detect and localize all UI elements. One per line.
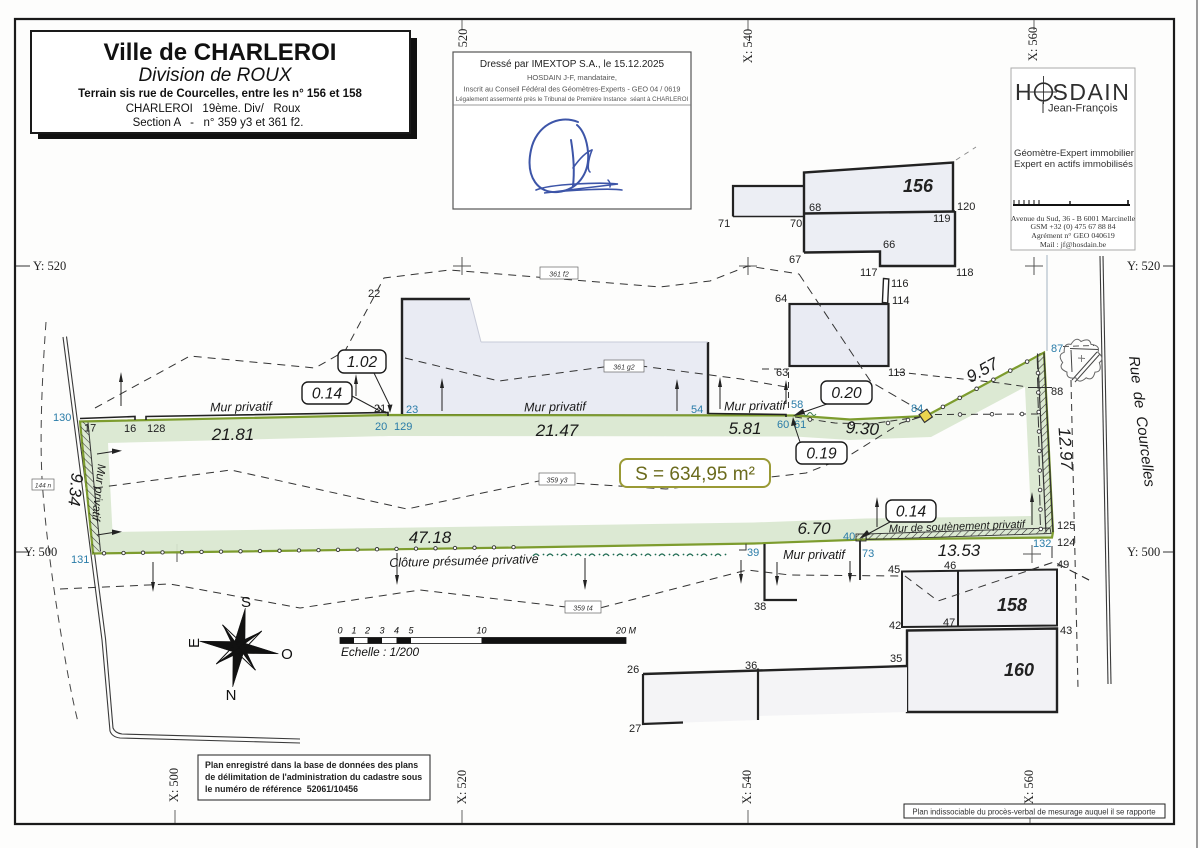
svg-text:Y: 500: Y: 500: [1127, 545, 1160, 559]
svg-text:Mur privatif: Mur privatif: [783, 548, 846, 562]
svg-text:118: 118: [956, 267, 974, 279]
svg-text:0.14: 0.14: [896, 504, 927, 521]
svg-text:5.81: 5.81: [728, 419, 761, 438]
svg-text:1: 1: [351, 626, 356, 636]
svg-text:Y: 520: Y: 520: [1127, 259, 1160, 273]
svg-text:130: 130: [53, 412, 71, 424]
svg-text:Division de ROUX: Division de ROUX: [138, 65, 292, 86]
svg-text:156: 156: [903, 176, 934, 196]
svg-text:46: 46: [944, 560, 956, 572]
svg-text:4: 4: [394, 626, 399, 636]
svg-text:66: 66: [883, 239, 895, 251]
svg-text:Mur privatif: Mur privatif: [724, 398, 788, 413]
svg-text:2: 2: [364, 626, 370, 636]
svg-text:158: 158: [997, 595, 1027, 615]
svg-text:124: 124: [1057, 537, 1075, 549]
svg-text:Y: 520: Y: 520: [33, 259, 66, 273]
svg-text:S: S: [241, 594, 251, 611]
svg-text:X: 540: X: 540: [740, 770, 754, 804]
svg-text:36: 36: [745, 660, 757, 672]
svg-text:Mur privatif: Mur privatif: [524, 399, 588, 414]
svg-text:361 g2: 361 g2: [613, 365, 635, 372]
svg-text:Mail : jf@hosdain.be: Mail : jf@hosdain.be: [1040, 240, 1107, 249]
svg-text:42: 42: [889, 620, 901, 632]
svg-text:de délimitation de l'administr: de délimitation de l'administration du c…: [205, 772, 422, 782]
svg-text:X: 500: X: 500: [167, 768, 181, 802]
svg-text:N: N: [226, 687, 237, 704]
svg-text:X: 560: X: 560: [1022, 770, 1036, 804]
svg-text:73: 73: [862, 548, 874, 560]
svg-text:39: 39: [747, 547, 759, 559]
svg-text:Y: 500: Y: 500: [24, 545, 57, 559]
svg-text:9.34: 9.34: [64, 472, 86, 507]
svg-text:Plan indissociable du procès-v: Plan indissociable du procès-verbal de m…: [912, 808, 1155, 817]
svg-text:9.30: 9.30: [845, 418, 880, 439]
svg-text:S = 634,95 m²: S = 634,95 m²: [635, 464, 755, 485]
svg-text:HOSDAIN J-F, mandataire,: HOSDAIN J-F, mandataire,: [527, 73, 617, 82]
svg-text:132: 132: [1033, 538, 1051, 550]
svg-text:1.02: 1.02: [347, 354, 378, 371]
svg-text:16: 16: [124, 423, 136, 435]
svg-text:35: 35: [890, 653, 902, 665]
svg-text:Section A - n° 359 y3 et 3: Section A - n° 359 y3 et 361 f2.: [133, 117, 304, 129]
svg-text:Dressé par IMEXTOP S.A., le 15: Dressé par IMEXTOP S.A., le 15.12.2025: [480, 59, 665, 70]
svg-text:116: 116: [891, 278, 909, 290]
svg-text:22: 22: [368, 288, 380, 300]
svg-text:Echelle : 1/200: Echelle : 1/200: [341, 645, 419, 659]
svg-text:114: 114: [892, 295, 910, 307]
svg-text:13.53: 13.53: [938, 541, 981, 560]
svg-text:20 M: 20 M: [615, 626, 637, 636]
svg-text:3: 3: [379, 626, 384, 636]
svg-text:131: 131: [71, 554, 89, 566]
svg-text:117: 117: [860, 267, 878, 279]
svg-text:45: 45: [888, 564, 900, 576]
svg-text:10: 10: [476, 626, 486, 636]
svg-text:54: 54: [691, 404, 703, 416]
svg-text:88: 88: [1051, 386, 1063, 398]
svg-text:38: 38: [754, 601, 766, 613]
svg-text:144 n: 144 n: [35, 483, 52, 490]
svg-text:64: 64: [775, 293, 787, 305]
svg-text:43: 43: [1060, 625, 1072, 637]
svg-text:6.70: 6.70: [797, 519, 831, 538]
svg-text:160: 160: [1004, 660, 1034, 680]
svg-text:520: 520: [456, 29, 470, 48]
svg-text:21.81: 21.81: [211, 425, 255, 444]
svg-text:17: 17: [84, 423, 96, 435]
svg-text:40: 40: [843, 531, 855, 543]
svg-text:CHARLEROI 19ème. Div/ Roux: CHARLEROI 19ème. Div/ Roux: [126, 103, 301, 115]
svg-text:119: 119: [933, 213, 951, 225]
svg-text:26: 26: [627, 664, 639, 676]
svg-text:67: 67: [789, 254, 801, 266]
svg-text:0.20: 0.20: [831, 385, 862, 402]
svg-text:21.47: 21.47: [535, 421, 579, 440]
svg-text:E: E: [186, 638, 203, 648]
svg-text:58: 58: [791, 399, 803, 411]
svg-text:27: 27: [629, 723, 641, 735]
svg-text:Géomètre-Expert immobilier: Géomètre-Expert immobilier: [1014, 148, 1135, 159]
svg-text:Mur privatif: Mur privatif: [210, 399, 274, 414]
svg-text:128: 128: [147, 423, 165, 435]
svg-text:Légalement assermenté près le: Légalement assermenté près le Tribunal d…: [456, 96, 689, 103]
svg-text:359 y3: 359 y3: [546, 478, 567, 485]
svg-text:63: 63: [776, 367, 788, 379]
svg-text:23: 23: [406, 404, 418, 416]
svg-text:Jean-François: Jean-François: [1048, 103, 1118, 115]
svg-text:60: 60: [777, 419, 789, 431]
svg-text:GSM +32 (0) 475 67 88 84: GSM +32 (0) 475 67 88 84: [1031, 222, 1116, 231]
svg-text:Expert en actifs immobilisés: Expert en actifs immobilisés: [1014, 159, 1133, 170]
svg-text:le numéro de référence 52061/: le numéro de référence 52061/10456: [205, 784, 358, 794]
svg-text:70: 70: [790, 218, 802, 230]
svg-text:0.19: 0.19: [806, 446, 837, 463]
svg-text:Plan enregistré dans la base d: Plan enregistré dans la base de données …: [205, 760, 418, 770]
svg-text:120: 120: [957, 201, 975, 213]
svg-text:Agrément n° GEO 040619: Agrément n° GEO 040619: [1031, 231, 1115, 240]
svg-text:X: 560: X: 560: [1026, 27, 1040, 61]
svg-text:47.18: 47.18: [409, 528, 452, 547]
svg-text:Ville de CHARLEROI: Ville de CHARLEROI: [104, 39, 337, 66]
svg-text:O: O: [281, 646, 293, 663]
svg-text:125: 125: [1057, 520, 1075, 532]
svg-text:0.14: 0.14: [312, 386, 343, 403]
svg-text:Terrain sis rue de Courcelles,: Terrain sis rue de Courcelles, entre les…: [78, 88, 362, 100]
svg-text:X: 540: X: 540: [741, 29, 755, 63]
svg-text:Inscrit au Conseil Fédéral des: Inscrit au Conseil Fédéral des Géomètres…: [464, 85, 681, 94]
svg-text:0: 0: [337, 626, 342, 636]
svg-text:361 f2: 361 f2: [549, 272, 569, 279]
svg-text:X: 520: X: 520: [455, 770, 469, 804]
svg-text:359 t4: 359 t4: [573, 606, 593, 613]
svg-text:47: 47: [943, 617, 955, 629]
svg-text:20: 20: [375, 421, 387, 433]
svg-text:68: 68: [809, 202, 821, 214]
svg-text:129: 129: [394, 421, 412, 433]
svg-text:113: 113: [888, 367, 906, 379]
svg-text:71: 71: [718, 218, 730, 230]
